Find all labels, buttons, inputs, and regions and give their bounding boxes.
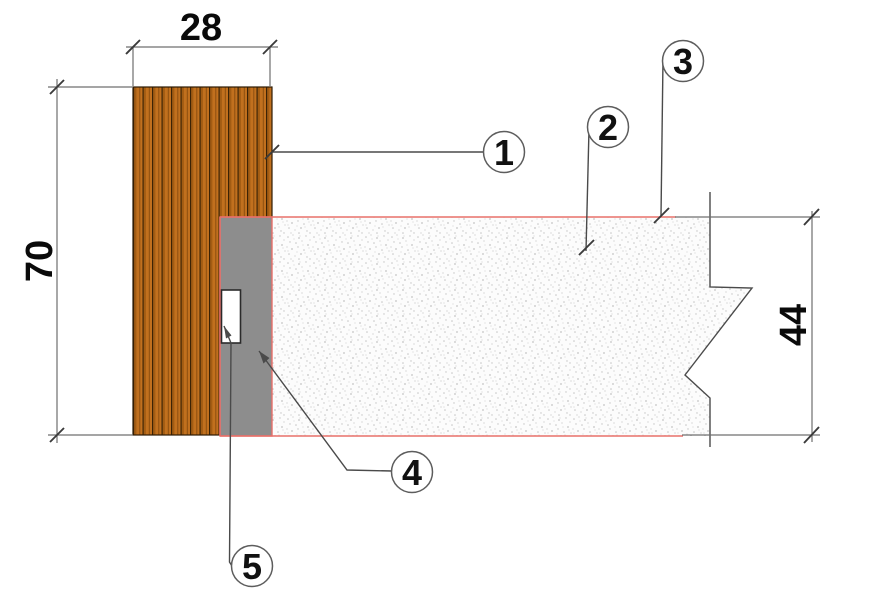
callout-5: 5 [232,546,273,588]
insulation-panel [220,217,752,436]
dimension-board-width: 28 [126,7,278,86]
dimension-value-28: 28 [180,7,222,49]
dimension-board-height: 70 [19,79,133,443]
callout-5-number: 5 [242,546,262,587]
callout-4: 4 [392,452,433,494]
callout-2: 2 [588,107,629,149]
callout-4-number: 4 [402,452,422,493]
construction-detail-drawing: 28 70 44 1 [0,0,877,590]
callout-1-number: 1 [494,132,514,173]
leader-3 [661,59,663,216]
diagram-canvas: 28 70 44 1 [0,0,877,590]
callout-2-number: 2 [598,107,618,148]
dimension-value-44: 44 [773,304,815,346]
callout-3: 3 [663,41,704,83]
callout-1: 1 [484,132,525,174]
callout-3-number: 3 [673,41,693,82]
dimension-value-70: 70 [19,240,61,282]
